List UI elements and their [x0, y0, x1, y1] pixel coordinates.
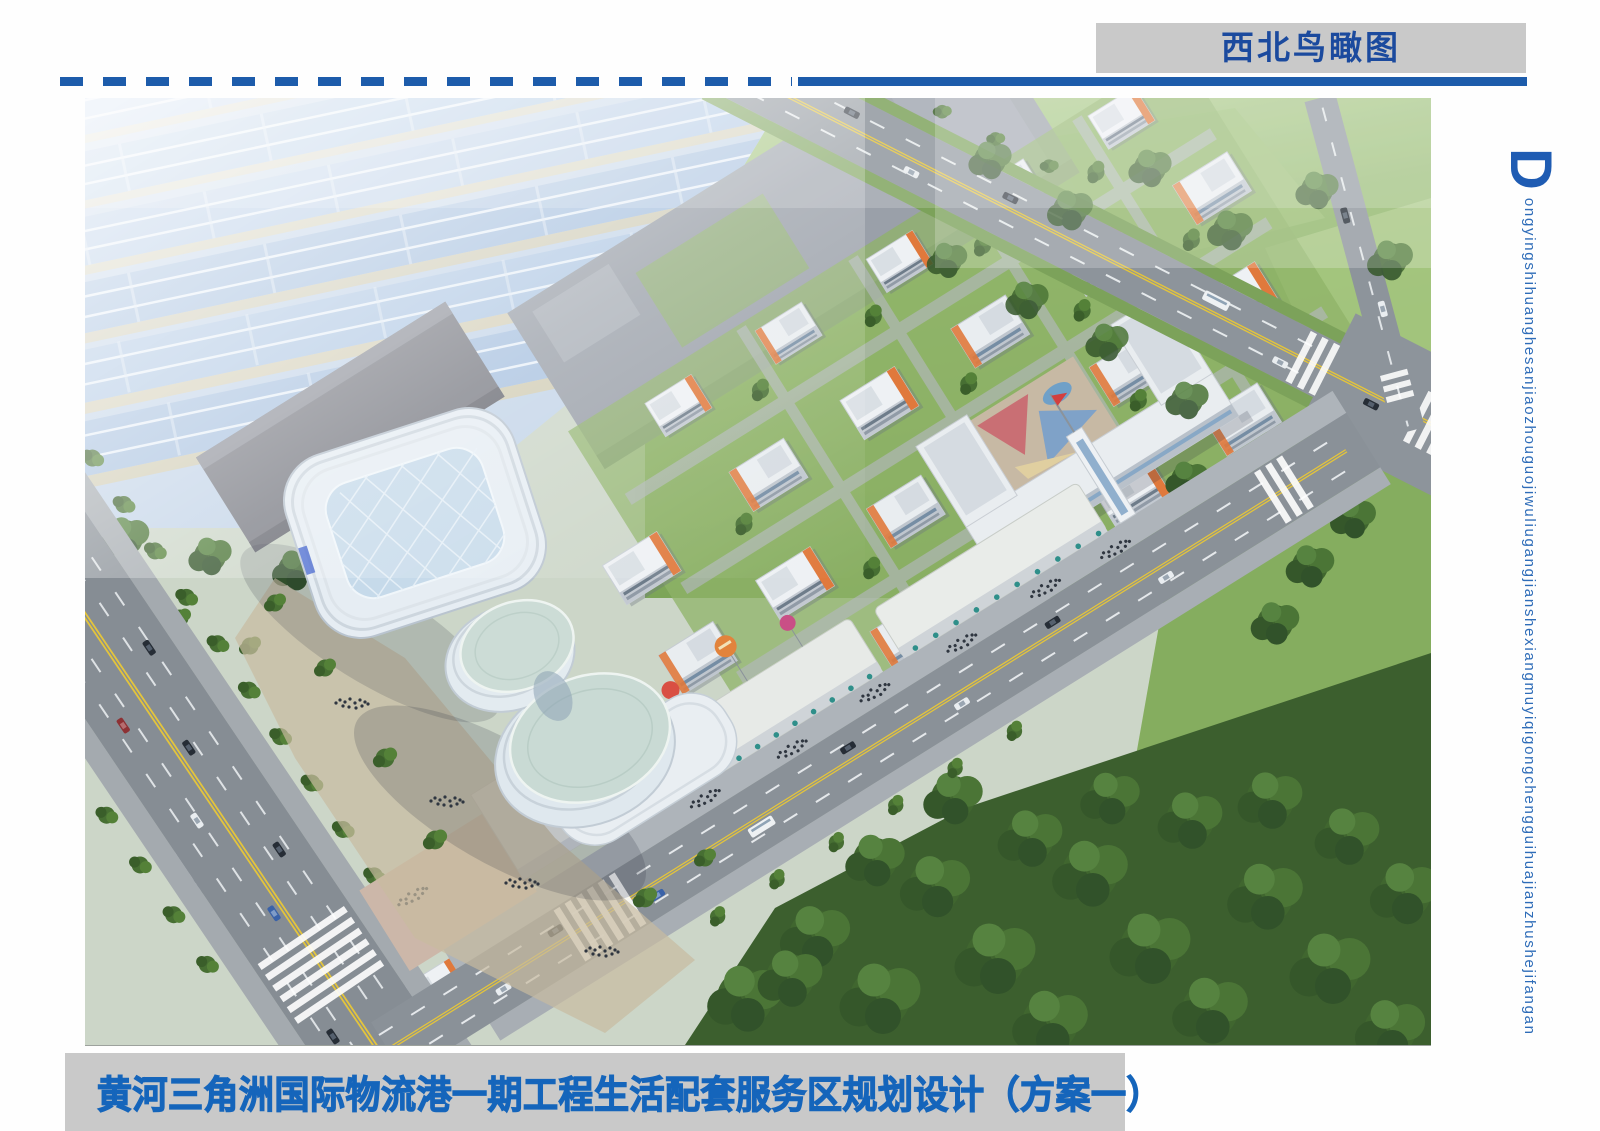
view-title-tab: 西北鸟瞰图 [1096, 23, 1526, 73]
aerial-rendering-canvas [85, 98, 1431, 1045]
side-caption-initial: D [1501, 148, 1559, 190]
aerial-rendering [85, 98, 1431, 1045]
view-title-label: 西北鸟瞰图 [1221, 23, 1401, 73]
header-dashed-rule [60, 77, 792, 86]
footer-title-bar: 黄河三角洲国际物流港一期工程生活配套服务区规划设计（方案一） [65, 1053, 1125, 1131]
side-caption-text: ongyingshihuanghesanjiaozhouguojiwuliuga… [1522, 198, 1539, 1036]
page: 西北鸟瞰图 [0, 0, 1600, 1131]
side-caption: D ongyingshihuanghesanjiaozhouguojiwuliu… [1498, 148, 1562, 1048]
footer-title: 黄河三角洲国际物流港一期工程生活配套服务区规划设计（方案一） [97, 1064, 1162, 1119]
header-solid-rule [798, 77, 1527, 86]
